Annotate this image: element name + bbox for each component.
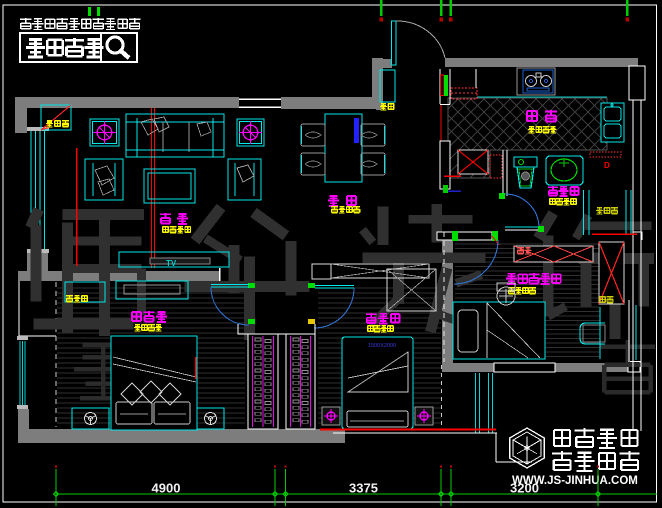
svg-text:TV: TV <box>166 259 177 268</box>
svg-text:1500X2000: 1500X2000 <box>368 343 396 349</box>
svg-text:D: D <box>604 161 610 170</box>
svg-text:4900: 4900 <box>152 481 181 496</box>
svg-text:3200: 3200 <box>510 481 539 496</box>
svg-text:3375: 3375 <box>349 481 378 496</box>
